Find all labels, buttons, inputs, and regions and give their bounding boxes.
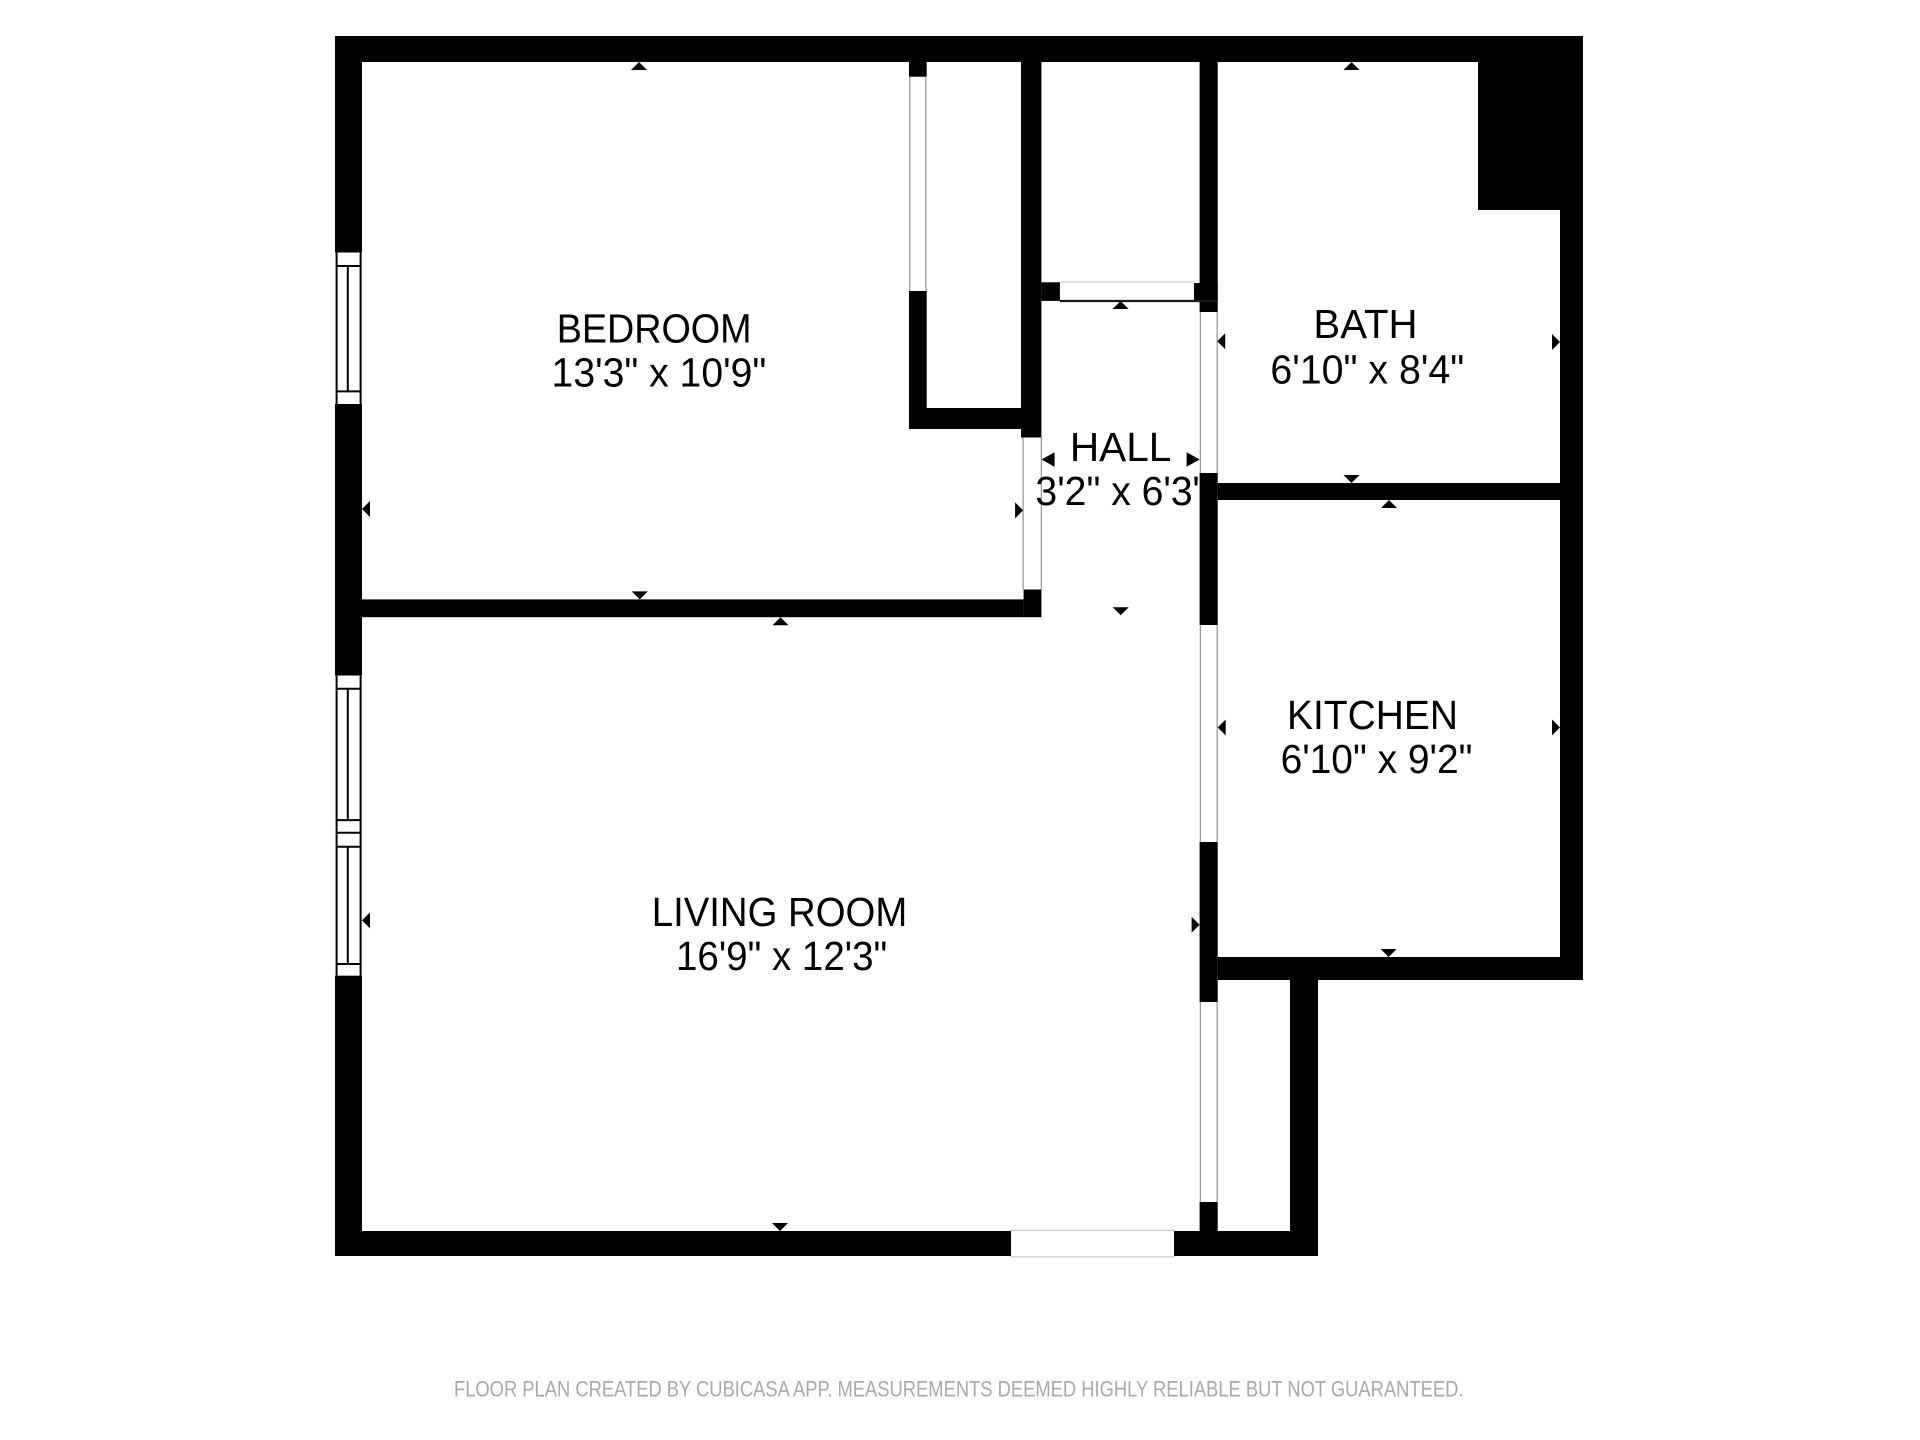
svg-text:3'2" x 6'3": 3'2" x 6'3" <box>1035 469 1206 514</box>
svg-text:6'10" x 9'2": 6'10" x 9'2" <box>1281 737 1473 782</box>
svg-text:FLOOR PLAN CREATED BY CUBICASA: FLOOR PLAN CREATED BY CUBICASA APP. MEAS… <box>454 1378 1463 1402</box>
svg-text:KITCHEN: KITCHEN <box>1287 693 1458 738</box>
svg-text:6'10" x 8'4": 6'10" x 8'4" <box>1270 347 1464 393</box>
svg-text:BEDROOM: BEDROOM <box>557 306 752 352</box>
svg-text:HALL: HALL <box>1070 424 1172 470</box>
svg-text:16'9" x 12'3": 16'9" x 12'3" <box>676 934 887 979</box>
svg-text:13'3" x 10'9": 13'3" x 10'9" <box>552 351 767 396</box>
svg-text:LIVING ROOM: LIVING ROOM <box>652 890 907 935</box>
svg-text:BATH: BATH <box>1313 301 1417 347</box>
